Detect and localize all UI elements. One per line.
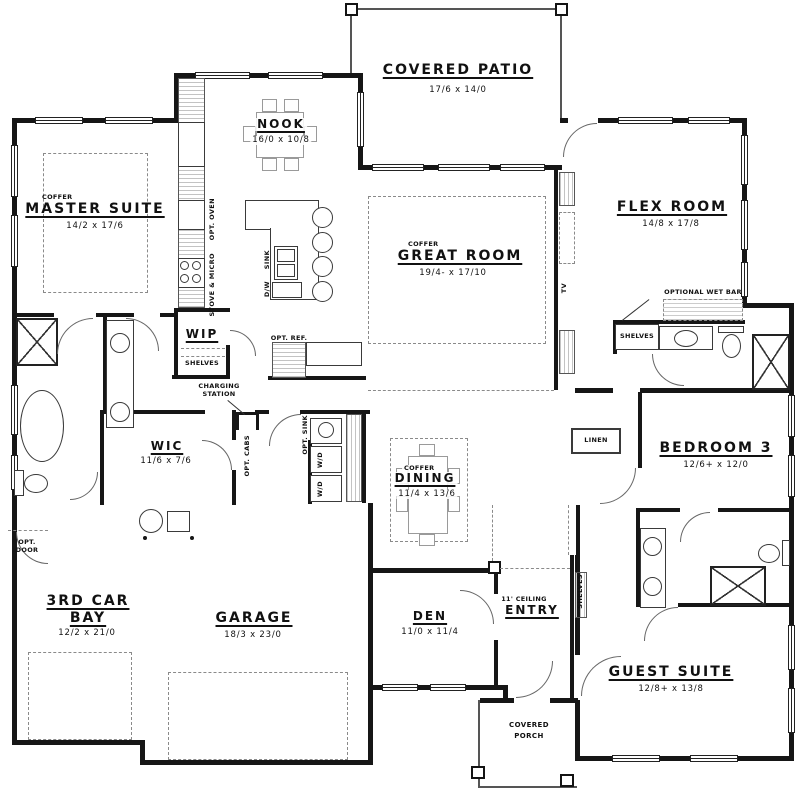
burner <box>192 274 201 283</box>
door-arc <box>126 318 159 351</box>
dining-chair <box>419 534 435 546</box>
label-opt-sink: OPT. SINK <box>301 415 309 455</box>
label-linen: LINEN <box>584 437 607 444</box>
toilet-tank <box>718 326 744 333</box>
shower <box>710 566 766 606</box>
wall <box>174 308 230 312</box>
wall <box>100 410 104 505</box>
dryer <box>310 475 342 502</box>
wall <box>236 412 259 415</box>
pantry-shelf <box>181 348 225 350</box>
vanity-sink <box>110 402 130 422</box>
barstool <box>312 281 333 302</box>
wall <box>554 168 558 390</box>
cased-opening <box>568 505 570 555</box>
window <box>788 395 795 437</box>
dining-chair <box>419 444 435 456</box>
vanity-sink <box>643 577 662 596</box>
wall <box>570 555 574 701</box>
door-arc <box>652 354 684 386</box>
barstool <box>312 207 333 228</box>
window <box>741 200 748 250</box>
wall <box>96 313 134 317</box>
label-entry-shelves: SHELVES <box>576 574 584 609</box>
label-stove-micro: STOVE & MICRO <box>208 253 216 317</box>
porch-column <box>560 774 574 787</box>
room-dims-flex-room: 14/8 x 17/8 <box>642 220 699 229</box>
wall <box>362 412 366 503</box>
floor-plan: COVERED PATIO 17/6 x 14/0 NOOK 16/0 x 10… <box>0 0 800 800</box>
door-arc <box>516 661 553 698</box>
door-arc <box>70 472 98 500</box>
window <box>11 145 18 197</box>
label-opt-ref: OPT. REF. <box>269 335 310 342</box>
room-label-master-suite: MASTER SUITE <box>25 202 164 217</box>
window <box>500 164 545 171</box>
garage-door-outline <box>168 672 348 760</box>
window <box>438 164 490 171</box>
window <box>268 72 323 79</box>
wall <box>12 740 144 745</box>
wall <box>494 572 498 594</box>
window <box>372 164 424 171</box>
label-opt-cabs: OPT. CABS <box>243 435 251 477</box>
wall <box>638 392 642 468</box>
room-label-3rd-car-bay-line1: 3RD CAR <box>47 594 130 609</box>
room-label-covered-porch-line2: PORCH <box>514 733 543 741</box>
toilet <box>722 334 741 358</box>
label-opt-oven: OPT. OVEN <box>208 198 216 240</box>
toilet <box>24 474 48 493</box>
bath-sink <box>674 330 698 347</box>
room-label-dining: DINING <box>393 472 458 485</box>
floor-drain <box>143 536 147 540</box>
toilet <box>758 544 780 563</box>
patio-column <box>555 3 568 16</box>
wall <box>140 760 372 765</box>
wall <box>560 118 568 123</box>
toilet-tank <box>782 540 790 566</box>
room-label-covered-patio: COVERED PATIO <box>383 63 533 78</box>
window <box>788 625 795 670</box>
window <box>688 117 730 124</box>
counter <box>306 342 362 366</box>
bathtub <box>20 390 64 462</box>
shower <box>752 334 790 390</box>
door-arc <box>563 123 597 157</box>
laundry-sink-basin <box>318 422 334 438</box>
room-label-bedroom3: BEDROOM 3 <box>660 441 773 456</box>
room-dims-bedroom3: 12/6+ x 12/0 <box>683 461 748 470</box>
door-arc <box>202 440 232 470</box>
wall <box>638 508 680 512</box>
door-arc <box>460 590 494 624</box>
room-dims-wic: 11/6 x 7/6 <box>140 457 191 466</box>
cased-opening <box>492 505 494 561</box>
refrigerator <box>272 342 306 378</box>
wall <box>12 313 54 317</box>
room-dims-great-room: 19/4- x 17/10 <box>419 269 486 278</box>
room-label-entry: ENTRY <box>505 604 559 617</box>
nook-chair <box>284 158 299 171</box>
door-arc <box>600 468 636 504</box>
door-arc <box>680 512 710 542</box>
vanity-sink <box>643 537 662 556</box>
room-label-great-room: GREAT ROOM <box>398 249 523 264</box>
shower <box>16 318 58 366</box>
window <box>741 262 748 297</box>
patio-roof-edge <box>350 8 352 75</box>
label-washer: W/D <box>316 452 324 468</box>
room-dims-den: 11/0 x 11/4 <box>401 628 458 637</box>
fireplace <box>559 172 575 206</box>
nook-chair <box>262 99 277 112</box>
wall <box>494 640 498 688</box>
room-dims-guest-suite: 12/8+ x 13/8 <box>638 685 703 694</box>
window <box>382 684 418 691</box>
door-arc <box>644 607 678 641</box>
burner <box>192 261 201 270</box>
window <box>357 92 364 147</box>
patio-roof-edge <box>560 8 562 120</box>
island-sink-basin <box>277 264 295 277</box>
wall <box>718 508 794 512</box>
media-cabinet <box>559 212 575 264</box>
room-dims-dining: 11/4 x 13/6 <box>396 490 457 499</box>
room-label-guest-suite: GUEST SUITE <box>609 665 734 680</box>
wall <box>368 568 500 573</box>
closet-door-leaf <box>622 299 649 321</box>
furnace <box>167 511 190 532</box>
room-dims-nook: 16/0 x 10/8 <box>250 136 311 145</box>
kitchen-cabinet <box>178 122 205 167</box>
dishwasher <box>272 282 302 298</box>
cabinet <box>559 330 575 374</box>
room-label-covered-porch-line1: COVERED <box>509 722 549 730</box>
wall <box>575 700 580 761</box>
wall <box>174 308 178 378</box>
nook-chair <box>262 158 277 171</box>
toilet-tank <box>14 470 24 496</box>
label-tv: TV <box>560 283 568 293</box>
room-label-nook: NOOK <box>255 118 307 131</box>
wall <box>575 756 794 761</box>
window <box>430 684 466 691</box>
broom-closet <box>346 414 362 502</box>
label-dryer: W/D <box>316 481 324 497</box>
washer <box>310 446 342 473</box>
island-sink-basin <box>277 249 295 262</box>
window <box>618 117 673 124</box>
wall <box>480 698 514 703</box>
label-hall-shelves: SHELVES <box>620 333 654 340</box>
room-label-3rd-car-bay-line2: BAY <box>70 611 106 626</box>
cased-opening <box>368 390 554 392</box>
room-dims-covered-patio: 17/6 x 14/0 <box>429 86 486 95</box>
window <box>741 135 748 185</box>
window <box>11 215 18 267</box>
room-label-garage: GARAGE <box>216 611 293 626</box>
room-label-wip: WIP <box>184 328 221 341</box>
window <box>35 117 83 124</box>
kitchen-island <box>245 200 319 230</box>
patio-column <box>345 3 358 16</box>
nook-chair <box>284 99 299 112</box>
room-dims-garage: 18/3 x 23/0 <box>224 631 281 640</box>
optional-wet-bar-outline <box>663 299 743 321</box>
wall <box>232 470 236 505</box>
barstool <box>312 232 333 253</box>
room-dims-master-suite: 14/2 x 17/6 <box>66 222 123 231</box>
wall <box>575 388 613 393</box>
room-dims-3rd-car-bay: 12/2 x 21/0 <box>58 629 115 638</box>
window <box>11 385 18 435</box>
wall <box>576 505 580 568</box>
wall <box>172 375 230 379</box>
window <box>612 755 660 762</box>
barstool <box>312 256 333 277</box>
label-dw: D/W <box>263 281 271 297</box>
oven <box>178 200 205 230</box>
floor-drain <box>190 536 194 540</box>
window <box>690 755 738 762</box>
label-optional-wet-bar: OPTIONAL WET BAR <box>664 289 742 296</box>
burner <box>180 274 189 283</box>
garage-door-outline <box>28 652 132 740</box>
window <box>105 117 153 124</box>
pantry-shelf <box>181 356 225 358</box>
porch-column <box>471 766 485 779</box>
window <box>788 455 795 497</box>
label-wip-shelves: SHELVES <box>183 360 221 367</box>
cased-opening <box>500 568 570 570</box>
patio-roof-edge <box>350 8 562 10</box>
room-label-den: DEN <box>413 610 447 623</box>
door-arc <box>269 414 301 446</box>
window <box>788 688 795 733</box>
room-label-flex-room: FLEX ROOM <box>617 200 727 215</box>
room-label-wic: WIC <box>151 440 184 453</box>
wall <box>742 303 794 308</box>
label-sink: SINK <box>263 250 271 269</box>
water-heater <box>139 509 163 533</box>
burner <box>180 261 189 270</box>
door-arc <box>57 318 93 354</box>
door-arc <box>230 330 256 356</box>
wall <box>368 503 373 765</box>
label-charging-line2: STATION <box>202 391 235 398</box>
label-opt-door-line2: DOOR <box>16 547 39 554</box>
